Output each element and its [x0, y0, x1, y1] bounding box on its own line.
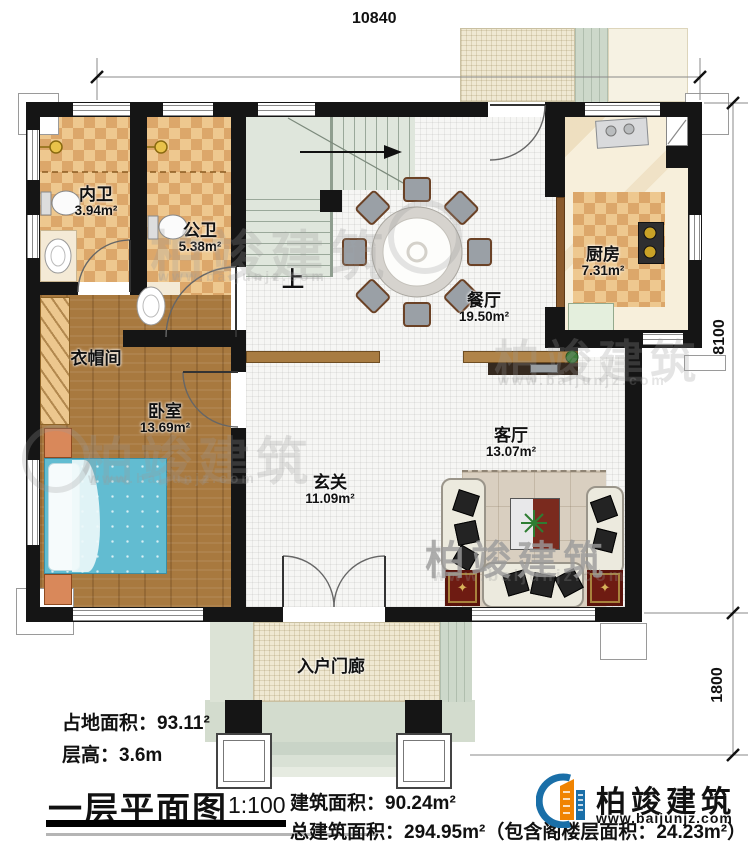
dim-right-upper-value: 8100 [711, 319, 729, 355]
legend-land-area: 占地面积：93.11² [62, 708, 210, 735]
watermark-site-1: www.baijunjz.com [158, 268, 327, 284]
title-underline-thick [46, 820, 286, 827]
room-label-dining: 餐厅19.50m² [459, 292, 509, 324]
legend-floor-height: 层高：3.6m [62, 740, 162, 767]
dim-top-value: 10840 [352, 10, 397, 28]
room-label-living: 客厅13.07m² [486, 427, 536, 459]
brand-logo-icon [536, 770, 592, 828]
door-arc-entry-left [283, 556, 334, 607]
floor-plan: ✦ ✦ [0, 0, 750, 844]
dim-right-lower-value: 1800 [709, 667, 727, 703]
watermark-logo-ring-2 [22, 425, 90, 493]
watermark-logo-ring-1 [388, 200, 462, 274]
watermark-site-2: www.baijunjz.com [88, 470, 257, 486]
brand-website: www.baijunjz.com [596, 810, 733, 826]
door-arc-entry-right [334, 556, 385, 607]
watermark-site-3: www.baijunjz.com [498, 372, 667, 388]
room-label-cloakroom: 衣帽间 [71, 350, 122, 368]
room-label-porch: 入户门廊 [297, 658, 365, 676]
room-label-kitchen: 厨房7.31m² [582, 246, 625, 278]
room-label-bath1: 内卫3.94m² [75, 186, 118, 218]
door-arc-bath1 [78, 240, 130, 292]
door-arc-terrace [490, 105, 545, 160]
watermark-site-4: www.baijunjz.com [432, 566, 627, 586]
legend-building-area: 建筑面积：90.24m² [290, 788, 456, 815]
stair-arrow-head [384, 145, 402, 159]
kitchen-fixture-details [606, 120, 686, 258]
door-arc-bedroom [183, 372, 238, 427]
plan-scale: 1:100 [228, 792, 286, 819]
